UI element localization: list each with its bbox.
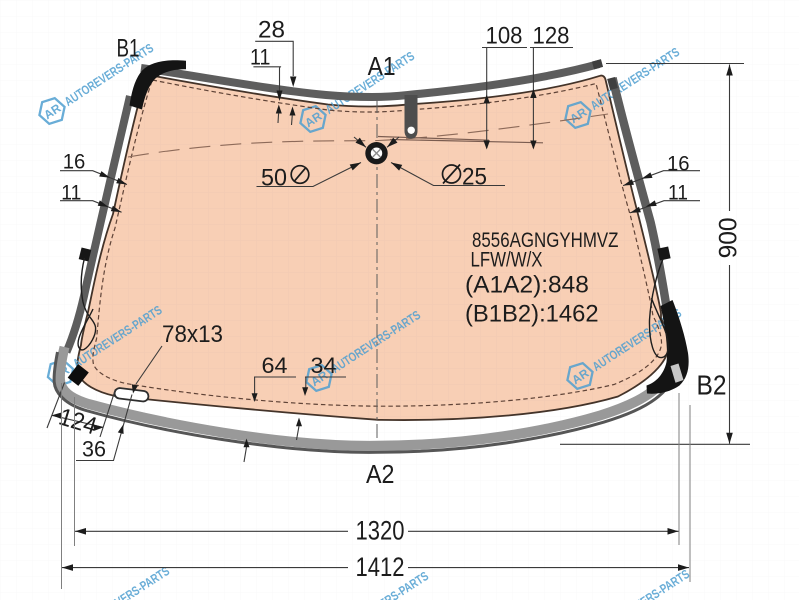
svg-text:50: 50	[261, 165, 287, 192]
svg-text:36: 36	[82, 437, 106, 462]
svg-text:900: 900	[716, 217, 743, 258]
svg-text:1320: 1320	[356, 516, 405, 546]
svg-text:A2: A2	[366, 459, 395, 489]
svg-text:(A1A2):848: (A1A2):848	[465, 272, 589, 299]
svg-text:16: 16	[63, 150, 86, 174]
svg-text:(B1B2):1462: (B1B2):1462	[465, 301, 599, 328]
svg-text:28: 28	[258, 17, 285, 44]
svg-text:78x13: 78x13	[162, 321, 223, 348]
svg-text:B2: B2	[697, 370, 727, 401]
svg-text:11: 11	[250, 44, 270, 69]
svg-text:LFW/W/X: LFW/W/X	[471, 248, 543, 272]
svg-text:64: 64	[262, 353, 288, 378]
svg-text:16: 16	[667, 152, 690, 176]
svg-text:108: 108	[486, 23, 523, 50]
svg-text:128: 128	[533, 23, 570, 50]
svg-text:B1: B1	[117, 35, 140, 63]
svg-text:25: 25	[462, 164, 487, 191]
svg-text:A1: A1	[368, 51, 396, 81]
svg-text:1412: 1412	[356, 552, 405, 582]
svg-text:34: 34	[311, 353, 337, 378]
